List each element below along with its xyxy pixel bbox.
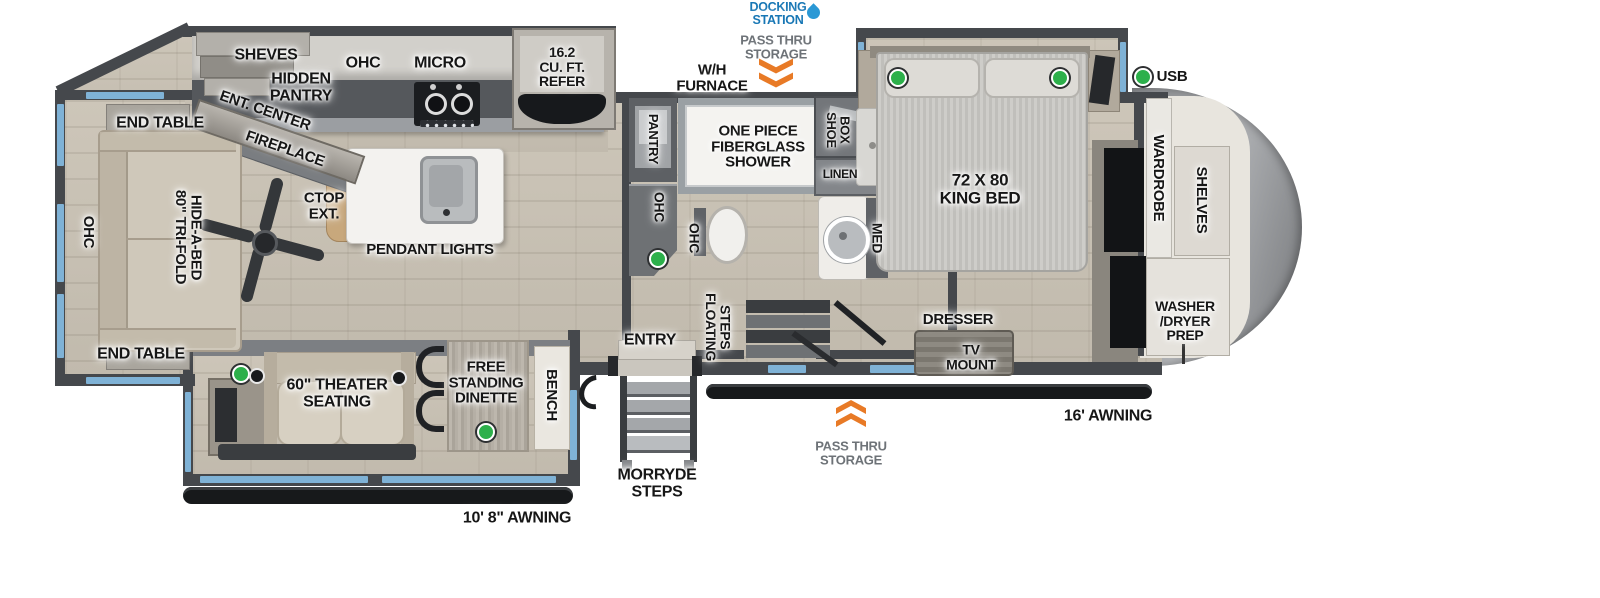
window xyxy=(768,365,806,373)
slide-end-cabinet-window xyxy=(215,388,237,442)
label-ohc-rear: OHC xyxy=(80,216,96,248)
label-pantry: PANTRY xyxy=(646,114,660,164)
label-docking-station: DOCKING STATION xyxy=(750,1,807,27)
bath-sink xyxy=(824,217,870,263)
rv-floorplan: SHEVES HIDDEN PANTRY ENT. CENTER FIREPLA… xyxy=(0,0,1600,598)
led-dot-green xyxy=(477,423,495,441)
label-micro: MICRO xyxy=(414,56,466,73)
label-usb: USB xyxy=(1157,69,1188,85)
label-wh-furnace: W/H FURNACE xyxy=(676,62,747,93)
morryde-step xyxy=(627,418,690,433)
bath-sink-drain xyxy=(839,232,847,240)
shower-drain xyxy=(869,142,876,149)
stove-burner xyxy=(451,93,473,115)
label-shelves-rear: SHEVES xyxy=(234,48,297,65)
fan-hub xyxy=(252,230,278,256)
led-dot-green xyxy=(889,69,907,87)
label-washer-dryer: WASHER /DRYER PREP xyxy=(1155,299,1215,343)
label-shoe-box: SHOE BOX xyxy=(824,112,851,148)
label-king-bed: 72 X 80 KING BED xyxy=(940,171,1021,206)
label-hidden-pantry: HIDDEN PANTRY xyxy=(270,71,332,104)
label-shower: ONE PIECE FIBERGLASS SHOWER xyxy=(711,124,805,171)
window xyxy=(57,294,64,358)
label-linen: LINEN xyxy=(823,168,858,180)
entry-door-frame xyxy=(692,356,702,376)
label-morryde-steps: MORRYDE STEPS xyxy=(617,467,696,500)
label-floating-steps: FLOATING STEPS xyxy=(703,293,732,361)
cupholder-dot xyxy=(391,370,407,386)
wall-bed-slide-top xyxy=(856,28,1128,38)
window xyxy=(200,476,368,483)
pass-thru-arrow-up-icon xyxy=(836,413,866,427)
stove-burner xyxy=(425,93,447,115)
stove-control-strip xyxy=(420,120,474,127)
label-dinette: FREE STANDING DINETTE xyxy=(449,360,524,407)
label-entry: ENTRY xyxy=(624,333,676,350)
label-counter-ohc: OHC xyxy=(652,192,667,222)
window xyxy=(185,392,191,472)
label-pendant-lights: PENDANT LIGHTS xyxy=(366,242,493,258)
window xyxy=(382,476,556,483)
label-awning-10-8: 10' 8" AWNING xyxy=(463,511,571,528)
island-sink-basin xyxy=(429,165,463,207)
entry-threshold xyxy=(614,358,698,376)
awning-bar-10-8 xyxy=(183,487,573,504)
sofa-back xyxy=(100,132,128,346)
wardrobe-opening xyxy=(1110,256,1150,348)
morryde-steps-rail xyxy=(690,376,697,462)
step-tread xyxy=(746,330,830,343)
water-drop-icon xyxy=(804,3,822,21)
label-refer: 16.2 CU. FT. REFER xyxy=(539,45,585,89)
usb-dot-green xyxy=(1134,68,1152,86)
window xyxy=(57,204,64,282)
morryde-step xyxy=(627,400,690,415)
washer-pointer-line xyxy=(1182,344,1185,364)
window xyxy=(1120,42,1126,92)
stove-burner-small xyxy=(456,84,462,90)
window xyxy=(86,92,164,99)
window xyxy=(86,377,180,384)
pass-thru-arrow-up-icon xyxy=(836,400,866,414)
step-tread xyxy=(746,300,830,313)
wardrobe-opening xyxy=(1104,148,1144,252)
toilet-bowl xyxy=(706,206,748,264)
morryde-step xyxy=(627,436,690,453)
label-end-table-top: END TABLE xyxy=(116,116,204,133)
label-awning-16: 16' AWNING xyxy=(1064,409,1152,426)
morryde-steps-rail xyxy=(620,376,627,462)
window xyxy=(570,390,577,460)
label-hide-a-bed: 80" TRI-FOLD HIDE-A-BED xyxy=(172,190,203,284)
cupholder-dot xyxy=(249,368,265,384)
faucet-icon xyxy=(443,209,450,216)
led-dot-green xyxy=(232,365,250,383)
pass-thru-arrow-down-icon xyxy=(759,73,793,88)
label-ohc-kitchen: OHC xyxy=(346,56,381,73)
label-wardrobe: WARDROBE xyxy=(1150,135,1166,222)
label-tv-mount: TV MOUNT xyxy=(946,342,996,371)
label-dresser: DRESSER xyxy=(923,312,993,328)
window xyxy=(57,104,64,166)
morryde-step xyxy=(627,382,690,397)
led-dot-green xyxy=(1051,69,1069,87)
label-front-shelves: SHELVES xyxy=(1193,167,1209,234)
label-theater-seating: 60" THEATER SEATING xyxy=(287,377,388,410)
label-med: MED xyxy=(870,223,885,253)
step-tread xyxy=(746,315,830,328)
theater-front-edge xyxy=(218,444,416,460)
label-ctop-ext: CTOP EXT. xyxy=(304,190,344,221)
stove-burner-small xyxy=(430,84,436,90)
label-end-table-bottom: END TABLE xyxy=(97,347,185,364)
awning-bar-16 xyxy=(706,384,1152,399)
led-dot-green xyxy=(649,250,667,268)
label-toilet-ohc: OHC xyxy=(687,223,702,253)
entry-door-frame xyxy=(608,356,618,376)
label-pass-thru-bottom: PASS THRU STORAGE xyxy=(815,439,886,466)
label-bench: BENCH xyxy=(543,369,559,421)
label-pass-thru-top: PASS THRU STORAGE xyxy=(740,33,811,60)
